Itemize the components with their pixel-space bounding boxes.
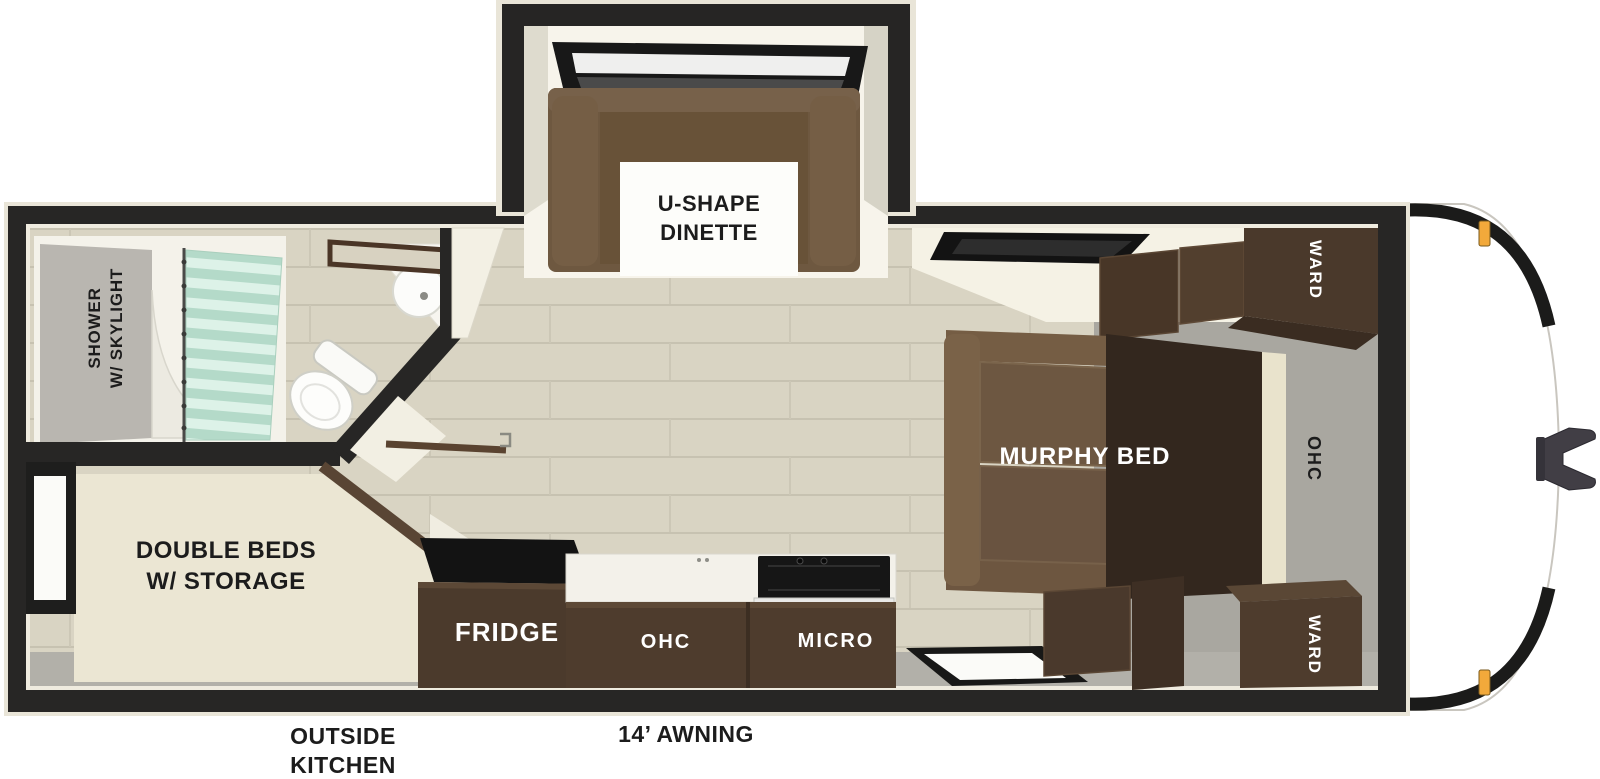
murphy-bed-platform <box>1106 334 1262 600</box>
floorplan-drawing <box>0 0 1600 779</box>
fridge-front <box>418 582 590 688</box>
front-cap <box>1406 204 1595 710</box>
shower-wall-panel <box>40 244 152 444</box>
fridge-top <box>420 538 590 584</box>
wardrobe-top <box>1244 228 1378 334</box>
medicine-cabinet <box>330 242 446 272</box>
dinette-slideout <box>496 0 916 278</box>
shower-curtain <box>186 250 282 440</box>
dinette-label-box <box>620 162 798 276</box>
dinette-window <box>552 42 868 96</box>
wardrobe-bottom <box>1240 596 1362 688</box>
base-cabinet <box>1044 586 1130 676</box>
ohc-cabinet-b <box>1180 242 1244 324</box>
murphy-bed-sofa <box>944 330 1110 596</box>
kitchen-cabinet-front <box>566 602 896 688</box>
kitchen <box>418 538 896 688</box>
base-cabinet-side <box>1132 576 1184 690</box>
ohc-cabinet-a <box>1100 250 1178 340</box>
marker-light-bottom <box>1479 670 1490 695</box>
murphy-bed-board <box>1262 352 1286 592</box>
marker-light-top <box>1479 221 1490 246</box>
bathroom <box>8 228 510 482</box>
rv-floorplan: U-SHAPE DINETTE SHOWER W/ SKYLIGHT DOUBL… <box>0 0 1600 779</box>
